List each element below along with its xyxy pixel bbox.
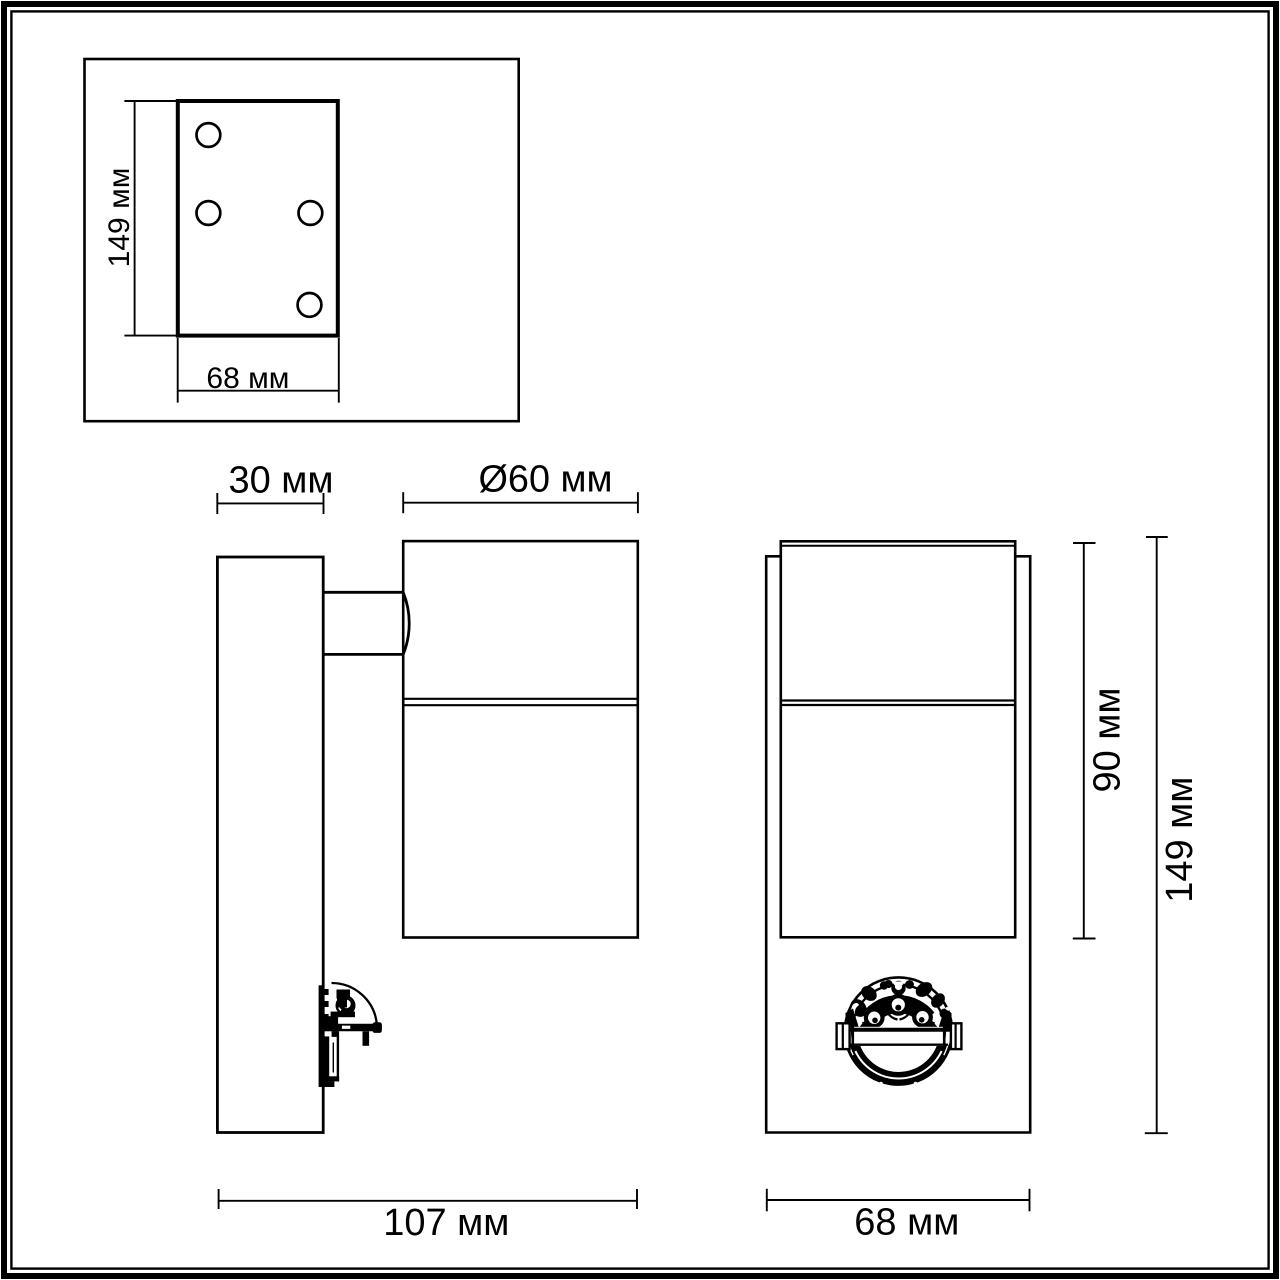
- svg-text:68 мм: 68 мм: [854, 1202, 959, 1244]
- svg-text:68 мм: 68 мм: [206, 362, 289, 395]
- svg-text:149 мм: 149 мм: [1159, 777, 1201, 903]
- svg-text:149 мм: 149 мм: [103, 168, 136, 268]
- svg-text:30 мм: 30 мм: [228, 460, 333, 502]
- svg-text:90 мм: 90 мм: [1086, 687, 1128, 792]
- svg-text:107 мм: 107 мм: [383, 1202, 509, 1244]
- svg-text:Ø60 мм: Ø60 мм: [479, 459, 613, 501]
